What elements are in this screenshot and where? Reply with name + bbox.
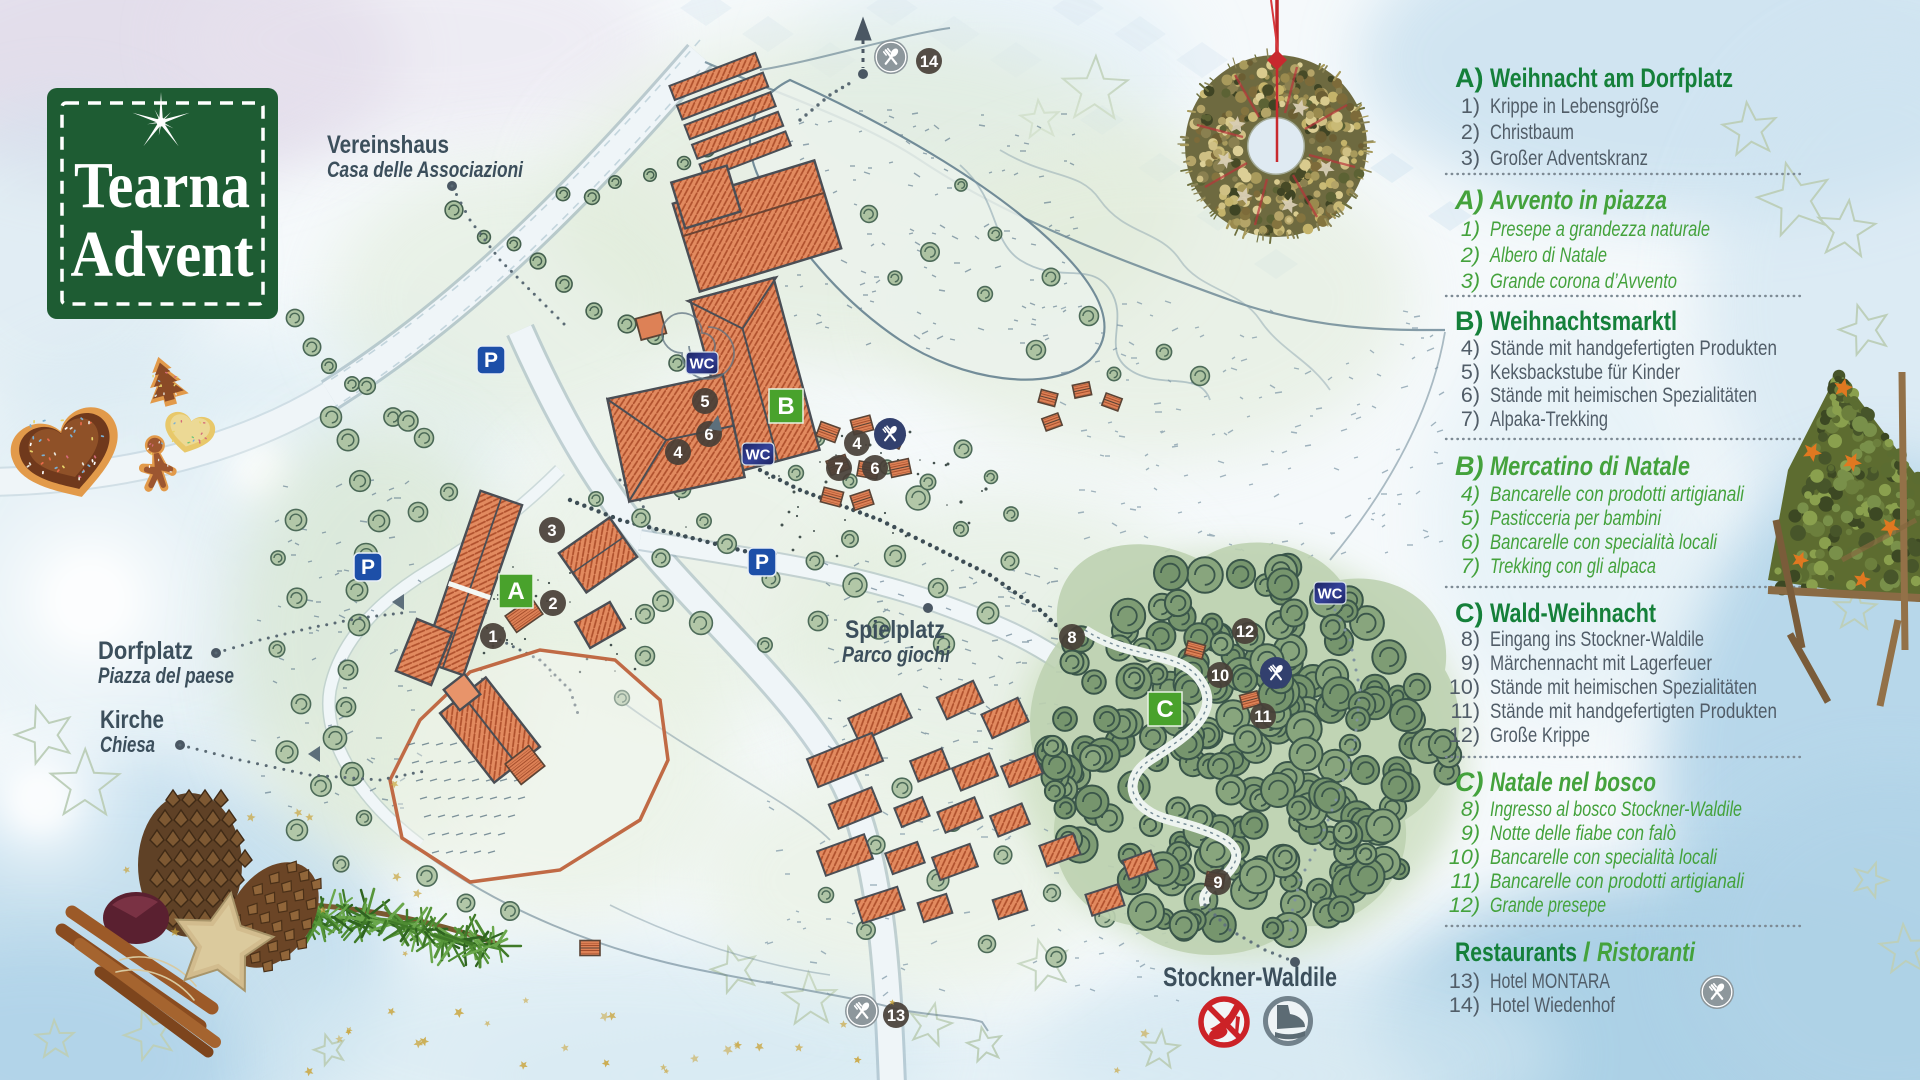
svg-text:Hotel MONTARA: Hotel MONTARA [1490, 969, 1610, 993]
svg-text:10: 10 [1211, 667, 1229, 685]
svg-text:Märchennacht mit Lagerfeuer: Märchennacht mit Lagerfeuer [1490, 651, 1712, 675]
svg-text:B: B [777, 393, 794, 420]
svg-text:P: P [484, 349, 498, 372]
svg-text:Stände mit heimischen Speziali: Stände mit heimischen Spezialitäten [1490, 383, 1757, 407]
svg-text:6): 6) [1461, 383, 1480, 407]
svg-text:Natale nel bosco: Natale nel bosco [1490, 767, 1656, 797]
svg-text:12): 12) [1449, 723, 1480, 747]
svg-text:Bancarelle con prodotti artigi: Bancarelle con prodotti artigianali [1490, 869, 1745, 893]
svg-text:Dorfplatz: Dorfplatz [98, 637, 193, 665]
svg-text:10): 10) [1449, 845, 1480, 869]
svg-text:3: 3 [547, 522, 556, 540]
svg-text:B): B) [1455, 451, 1484, 481]
svg-text:8: 8 [1067, 629, 1076, 647]
svg-text:P: P [361, 556, 375, 579]
svg-text:A): A) [1454, 185, 1484, 215]
svg-text:10): 10) [1449, 675, 1480, 699]
svg-text:Avvento in piazza: Avvento in piazza [1489, 185, 1667, 215]
svg-text:3): 3) [1461, 269, 1480, 293]
svg-text:9: 9 [1213, 874, 1222, 892]
svg-text:Große Krippe: Große Krippe [1490, 723, 1590, 747]
svg-text:1): 1) [1461, 217, 1480, 241]
svg-text:Krippe in Lebensgröße: Krippe in Lebensgröße [1490, 94, 1659, 118]
svg-text:Wald-Weihnacht: Wald-Weihnacht [1490, 598, 1656, 628]
svg-text:Albero di Natale: Albero di Natale [1488, 243, 1607, 267]
svg-text:Keksbackstube für Kinder: Keksbackstube für Kinder [1490, 360, 1680, 384]
svg-text:4): 4) [1461, 336, 1480, 360]
svg-text:Vereinshaus: Vereinshaus [327, 131, 449, 159]
svg-text:2: 2 [548, 595, 557, 613]
svg-text:Eingang ins Stockner-Waldile: Eingang ins Stockner-Waldile [1490, 627, 1704, 651]
svg-text:1: 1 [488, 628, 497, 646]
svg-text:5: 5 [700, 393, 709, 411]
svg-text:/: / [1583, 937, 1591, 967]
svg-text:A): A) [1455, 63, 1484, 93]
svg-text:Ingresso al bosco Stockner-Wal: Ingresso al bosco Stockner-Waldile [1490, 797, 1742, 821]
svg-text:4: 4 [673, 444, 683, 462]
svg-text:P: P [755, 551, 769, 574]
svg-text:7): 7) [1461, 554, 1480, 578]
svg-text:11: 11 [1254, 708, 1271, 726]
svg-text:Ristoranti: Ristoranti [1597, 937, 1695, 967]
svg-text:Bancarelle con specialità loca: Bancarelle con specialità locali [1490, 845, 1718, 869]
svg-text:8): 8) [1461, 627, 1480, 651]
svg-text:Advent: Advent [71, 218, 254, 291]
svg-text:Großer Adventskranz: Großer Adventskranz [1490, 146, 1648, 170]
svg-text:Mercatino di Natale: Mercatino di Natale [1490, 451, 1690, 481]
svg-text:A: A [507, 578, 524, 605]
svg-text:7): 7) [1461, 407, 1480, 431]
svg-text:1): 1) [1461, 94, 1480, 118]
svg-text:Pasticceria per bambini: Pasticceria per bambini [1490, 506, 1662, 530]
svg-text:Trekking con gli alpaca: Trekking con gli alpaca [1490, 554, 1656, 578]
svg-text:Chiesa: Chiesa [100, 732, 155, 757]
svg-text:Spielplatz: Spielplatz [845, 616, 945, 644]
svg-text:9): 9) [1461, 651, 1480, 675]
svg-text:WC: WC [746, 446, 771, 463]
svg-text:C): C) [1455, 598, 1484, 628]
svg-text:12: 12 [1236, 623, 1254, 641]
svg-text:C: C [1156, 696, 1173, 723]
svg-text:6): 6) [1461, 530, 1480, 554]
svg-text:Grande presepe: Grande presepe [1490, 893, 1606, 917]
svg-text:4): 4) [1461, 482, 1480, 506]
svg-text:7: 7 [834, 460, 843, 478]
svg-text:13: 13 [887, 1007, 905, 1025]
svg-text:11): 11) [1451, 699, 1480, 723]
svg-text:2): 2) [1460, 243, 1480, 267]
svg-text:3): 3) [1461, 146, 1480, 170]
svg-text:Stände mit handgefertigten Pro: Stände mit handgefertigten Produkten [1490, 336, 1777, 360]
svg-text:WC: WC [1318, 585, 1343, 602]
svg-text:12): 12) [1449, 893, 1480, 917]
svg-text:Tearna: Tearna [74, 149, 250, 222]
svg-text:4: 4 [852, 435, 862, 453]
svg-text:Grande corona d’Avvento: Grande corona d’Avvento [1490, 269, 1677, 293]
svg-text:Weihnacht am Dorfplatz: Weihnacht am Dorfplatz [1490, 63, 1733, 93]
svg-text:Alpaka-Trekking: Alpaka-Trekking [1490, 407, 1608, 431]
svg-text:Stände mit handgefertigten Pro: Stände mit handgefertigten Produkten [1490, 699, 1777, 723]
svg-text:Stände mit heimischen Speziali: Stände mit heimischen Spezialitäten [1490, 675, 1757, 699]
svg-text:Parco giochi: Parco giochi [842, 642, 951, 667]
svg-text:6: 6 [870, 460, 879, 478]
svg-text:B): B) [1455, 306, 1484, 336]
svg-text:C): C) [1455, 767, 1484, 797]
svg-text:Kirche: Kirche [100, 706, 164, 734]
svg-text:Bancarelle con specialità loca: Bancarelle con specialità locali [1490, 530, 1718, 554]
svg-text:Hotel Wiedenhof: Hotel Wiedenhof [1490, 993, 1615, 1017]
svg-text:Notte delle fiabe con falò: Notte delle fiabe con falò [1490, 821, 1676, 845]
svg-text:5): 5) [1461, 506, 1480, 530]
svg-text:Bancarelle con prodotti artigi: Bancarelle con prodotti artigianali [1490, 482, 1745, 506]
svg-text:Presepe a grandezza naturale: Presepe a grandezza naturale [1490, 217, 1710, 241]
svg-text:Weihnachtsmarktl: Weihnachtsmarktl [1490, 306, 1677, 336]
svg-text:11): 11) [1451, 869, 1480, 893]
svg-text:Casa delle Associazioni: Casa delle Associazioni [327, 157, 524, 182]
svg-text:9): 9) [1461, 821, 1480, 845]
svg-text:8): 8) [1461, 797, 1480, 821]
svg-text:Piazza del paese: Piazza del paese [98, 663, 234, 688]
svg-text:14: 14 [920, 53, 939, 71]
svg-text:Restaurants: Restaurants [1455, 937, 1577, 967]
svg-text:5): 5) [1461, 360, 1480, 384]
svg-text:2): 2) [1461, 120, 1480, 144]
svg-text:Stockner-Waldile: Stockner-Waldile [1163, 962, 1337, 992]
svg-text:Christbaum: Christbaum [1490, 120, 1574, 144]
svg-text:13): 13) [1449, 969, 1480, 993]
svg-text:WC: WC [690, 355, 715, 372]
svg-text:14): 14) [1449, 993, 1480, 1017]
